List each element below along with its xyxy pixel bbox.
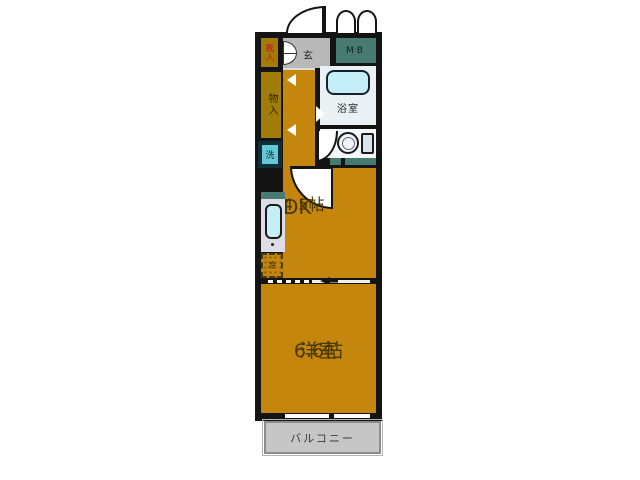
sliding-door-track-dashes (268, 280, 312, 283)
bathroom-label: 浴室 (320, 100, 376, 115)
shoe-cabinet-label: 靴入 (266, 44, 274, 62)
kitchen-counter-edge (261, 192, 285, 199)
storage-closet-label: 物入 (266, 93, 276, 117)
storage-closet: 物入 (261, 72, 281, 138)
balcony: バルコニー (264, 421, 381, 454)
kitchen-faucet-dot (271, 243, 274, 246)
refrigerator-space: 冷 (261, 253, 283, 278)
western-room: 洋室 6.6帖 (261, 284, 376, 413)
hallway (283, 68, 315, 168)
entrance-label: 玄 (303, 47, 313, 62)
floor-plan: 靴入 玄 MB 浴室 物入 WC DK 4.5帖 洗 冷 (0, 0, 640, 480)
bathtub (326, 70, 370, 95)
kitchen-sink (265, 204, 282, 239)
toilet-bowl (337, 132, 359, 154)
bathroom: 浴室 (320, 66, 376, 125)
washer-space: 洗 (258, 141, 282, 168)
sliding-door-panel (312, 280, 370, 283)
counter-strip-large (345, 158, 376, 165)
balcony-window-left (285, 414, 329, 418)
toilet-tank (361, 133, 374, 154)
dining-kitchen-size-label: 4.5帖 (283, 196, 324, 214)
shoe-cabinet: 靴入 (261, 38, 278, 67)
balcony-label: バルコニー (290, 430, 355, 446)
entrance-door-arc (286, 6, 326, 33)
western-room-size-label: 6.6帖 (294, 339, 343, 365)
counter-strip-small (330, 158, 341, 165)
meter-box-label: MB (346, 46, 366, 56)
meter-box: MB (336, 38, 376, 63)
meter-box-door-right-arc (357, 10, 377, 33)
refrigerator-label: 冷 (268, 260, 276, 271)
balcony-window-right (334, 414, 370, 418)
meter-box-door-left-arc (336, 10, 356, 33)
washer-label: 洗 (265, 148, 274, 161)
